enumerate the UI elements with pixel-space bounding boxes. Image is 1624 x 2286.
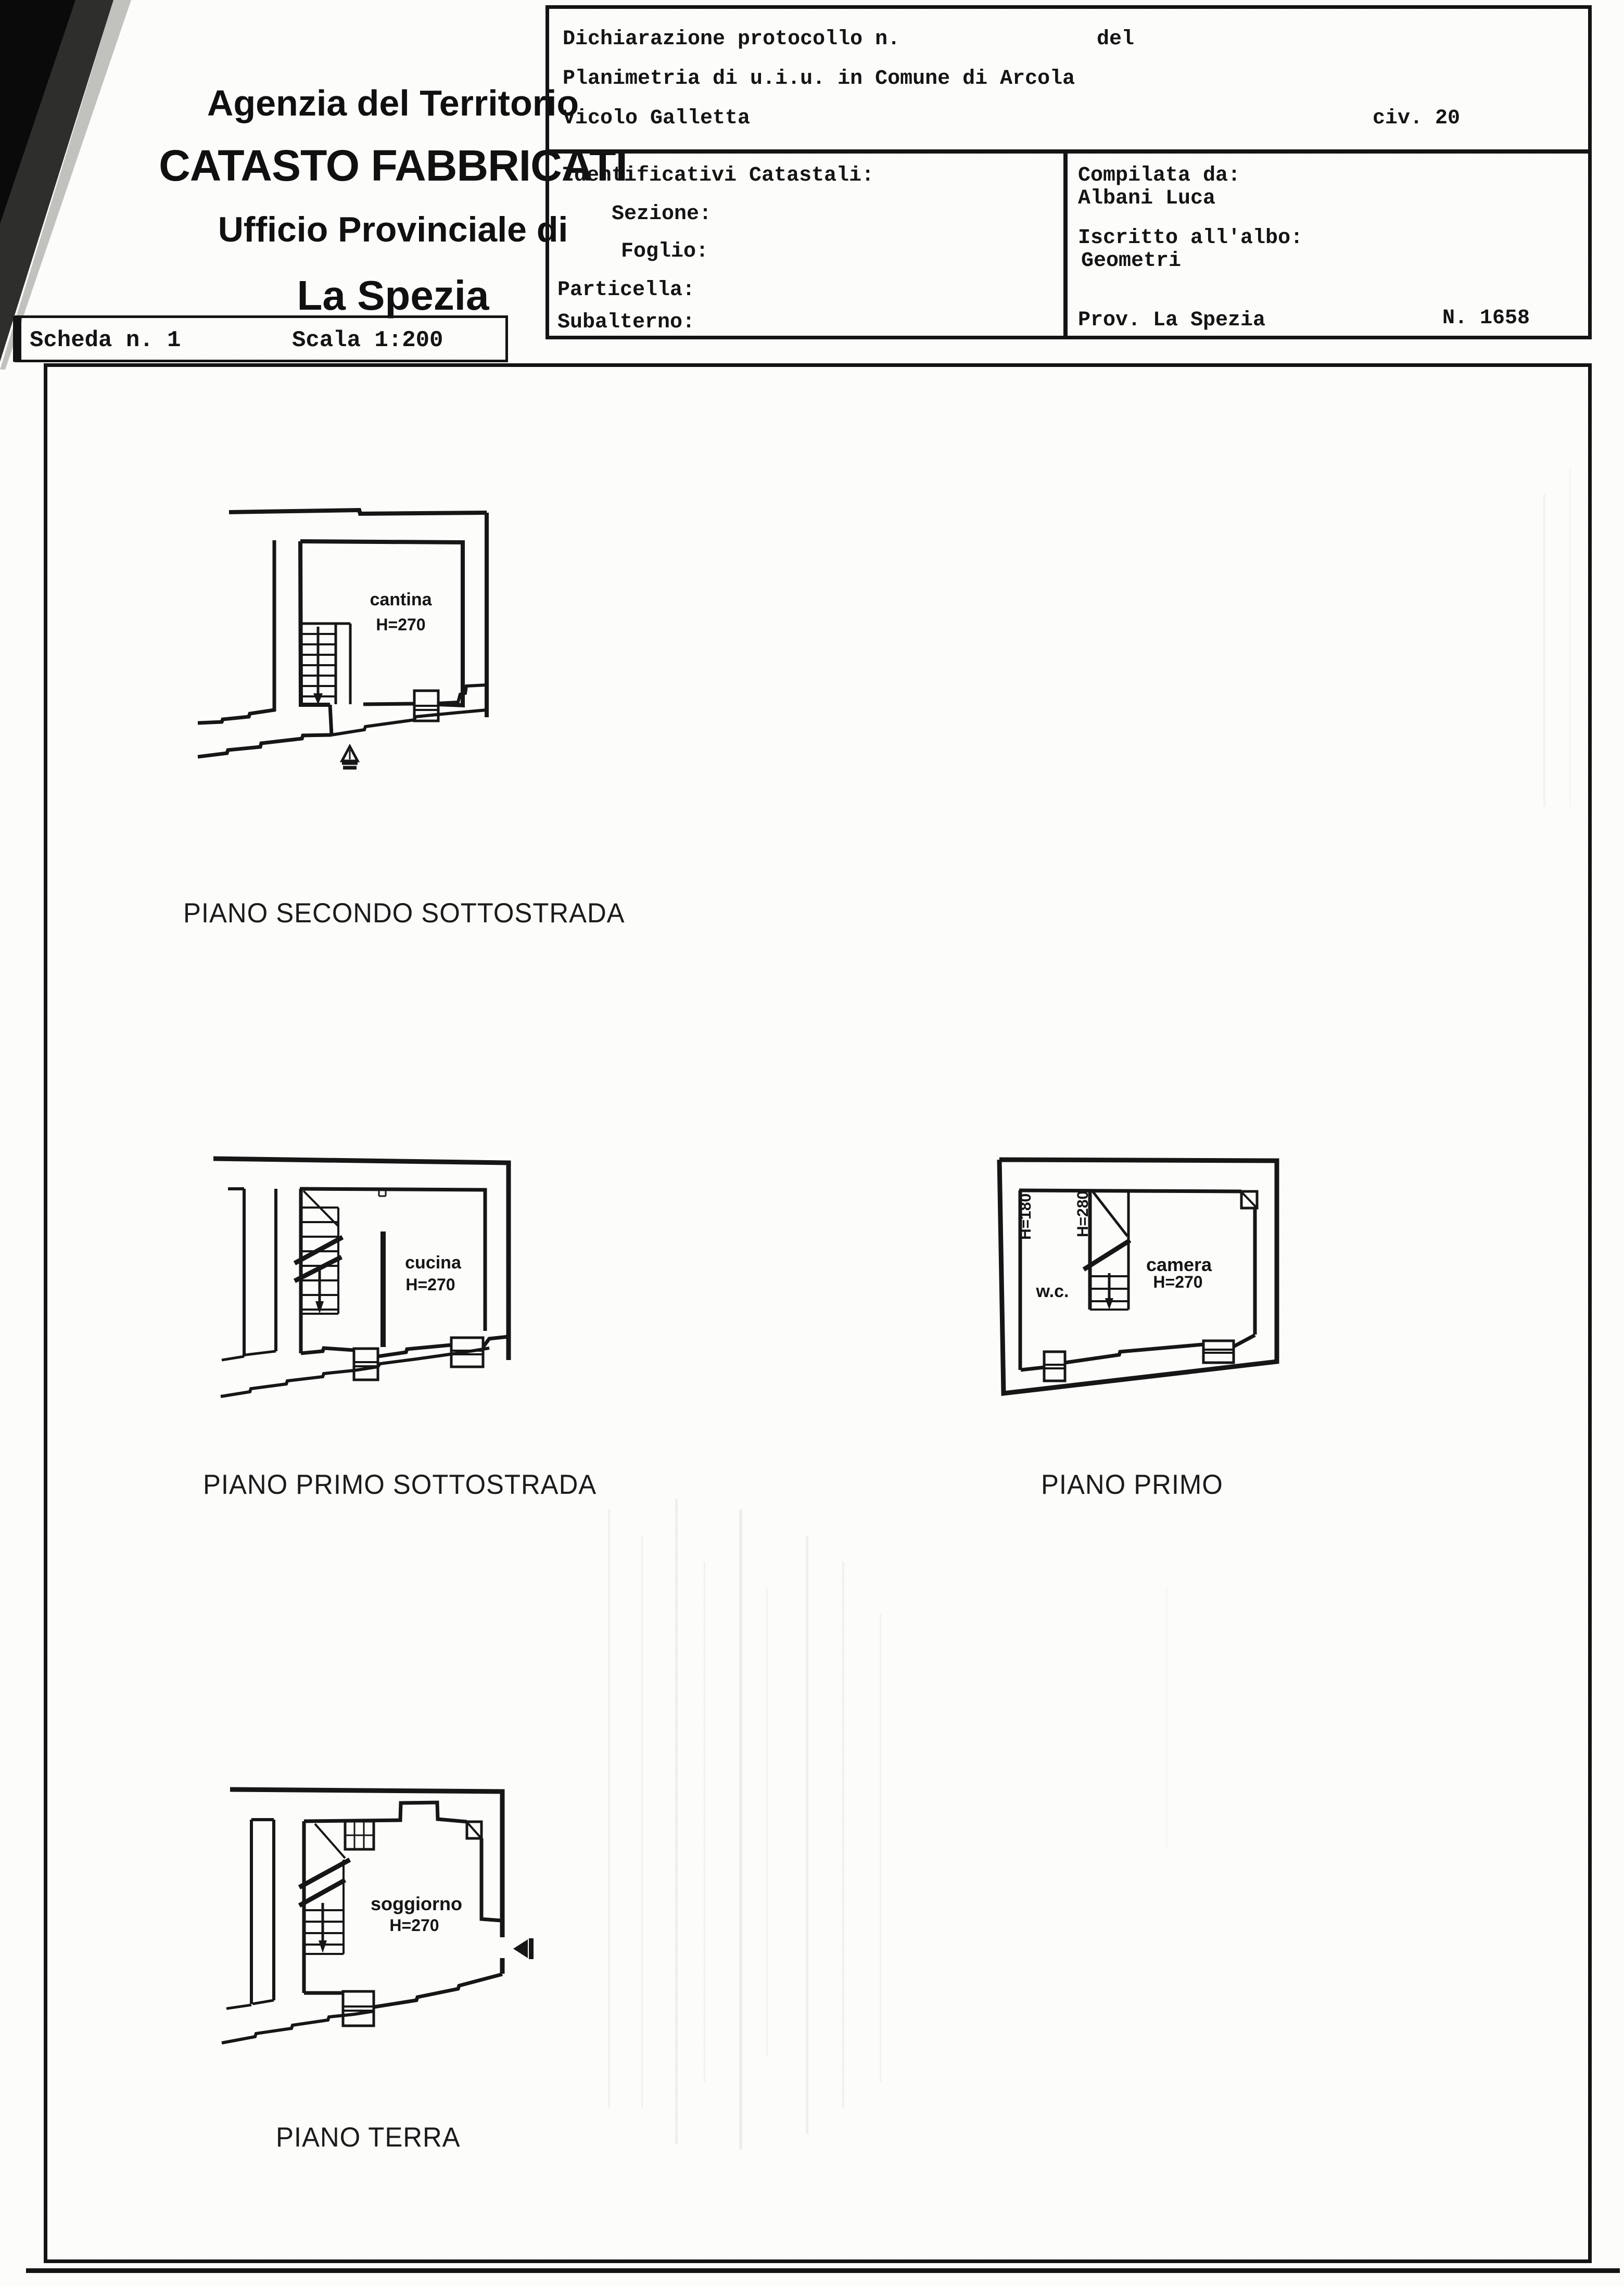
- room-label-camera: camera: [1146, 1254, 1212, 1275]
- divider-vertical: [1063, 149, 1068, 336]
- cucina-walls: [213, 1159, 509, 1360]
- field-subalterno: Subalterno:: [557, 311, 695, 334]
- benchmark-icon: [342, 746, 358, 768]
- scan-streak: [739, 1509, 742, 2150]
- camera-inner-walls: [1019, 1190, 1255, 1370]
- scan-streak: [704, 1561, 705, 2082]
- scan-smudge: [13, 316, 21, 362]
- cadastral-document-page: Agenzia del Territorio CATASTO FABBRICAT…: [0, 0, 1624, 2286]
- albo-value: Geometri: [1081, 249, 1181, 273]
- field-particella: Particella:: [557, 278, 695, 302]
- declaration-box: Dichiarazione protocollo n. del Planimet…: [545, 5, 1592, 339]
- identificativi-title: Identificativi Catastali:: [562, 164, 874, 187]
- wall-height-stair: H=280: [1074, 1191, 1092, 1237]
- floor-plan-soggiorno: soggiorno H=270: [198, 1770, 562, 2061]
- corner-window-icon: [467, 1822, 481, 1838]
- room-label-wc: w.c.: [1036, 1281, 1069, 1301]
- stair-down-arrow-icon: [315, 1301, 324, 1314]
- scan-streak: [1569, 468, 1571, 807]
- albo-label: Iscritto all'albo:: [1078, 226, 1303, 250]
- room-height-cantina: H=270: [376, 615, 425, 634]
- scan-streak: [608, 1509, 610, 2108]
- frame-bottom-line: [26, 2268, 1620, 2273]
- scan-streak: [641, 1535, 643, 2108]
- room-height-camera: H=270: [1153, 1273, 1202, 1291]
- scheda-box: Scheda n. 1 Scala 1:200: [15, 315, 508, 362]
- floor-plan-cantina: cantina H=270: [182, 484, 547, 822]
- compilata-name: Albani Luca: [1078, 187, 1215, 210]
- soggiorno-staircase: [299, 1824, 350, 1954]
- divider-horizontal: [549, 149, 1588, 154]
- street-name: Vicolo Galletta: [563, 107, 750, 130]
- scale-value: Scala 1:200: [292, 327, 443, 353]
- entry-arrow-icon: [513, 1938, 534, 1959]
- room-label-cucina: cucina: [405, 1253, 462, 1273]
- room-height-cucina: H=270: [405, 1275, 455, 1294]
- camera-outer-walls: [999, 1160, 1277, 1393]
- closet-grid: [345, 1821, 374, 1849]
- scheda-number: Scheda n. 1: [30, 327, 181, 353]
- corner-window-icon: [1241, 1191, 1257, 1208]
- field-foglio: Foglio:: [621, 240, 708, 263]
- albo-number: N. 1658: [1442, 307, 1530, 330]
- field-sezione: Sezione:: [612, 202, 712, 226]
- scan-streak: [766, 1587, 768, 2056]
- scan-streak: [842, 1561, 844, 2108]
- room-label-soggiorno: soggiorno: [371, 1893, 462, 1914]
- room-height-soggiorno: H=270: [389, 1916, 439, 1935]
- compilata-label: Compilata da:: [1078, 164, 1240, 187]
- scan-streak: [880, 1614, 881, 2082]
- floor-label-piano-primo: PIANO PRIMO: [1041, 1469, 1223, 1501]
- wall-height-wc: H=180: [1017, 1193, 1034, 1240]
- floor-label-piano-primo-sottostrada: PIANO PRIMO SOTTOSTRADA: [203, 1469, 597, 1501]
- prov-label: Prov. La Spezia: [1078, 309, 1265, 332]
- scan-streak: [1543, 494, 1545, 807]
- scan-streak: [675, 1499, 678, 2144]
- room-label-cantina: cantina: [370, 590, 432, 609]
- scan-streak: [1166, 1587, 1168, 1848]
- floor-plan-cucina: cucina H=270: [198, 1129, 552, 1405]
- floor-label-piano-secondo-sottostrada: PIANO SECONDO SOTTOSTRADA: [183, 897, 625, 929]
- protocol-label: Dichiarazione protocollo n.: [563, 28, 900, 51]
- civic-number: civ. 20: [1373, 107, 1460, 130]
- soggiorno-door-sill: [343, 1991, 374, 2026]
- stair-down-arrow-icon: [319, 1940, 327, 1953]
- protocol-del: del: [1097, 28, 1134, 51]
- floor-plan-camera-wc: H=180 H=280 w.c. camera H=270: [963, 1119, 1306, 1421]
- floor-label-piano-terra: PIANO TERRA: [276, 2122, 461, 2153]
- scan-streak: [806, 1535, 808, 2134]
- stair-down-arrow-icon: [1105, 1298, 1113, 1310]
- planimetria-line: Planimetria di u.i.u. in Comune di Arcol…: [563, 67, 1075, 91]
- cantina-staircase: [300, 624, 350, 705]
